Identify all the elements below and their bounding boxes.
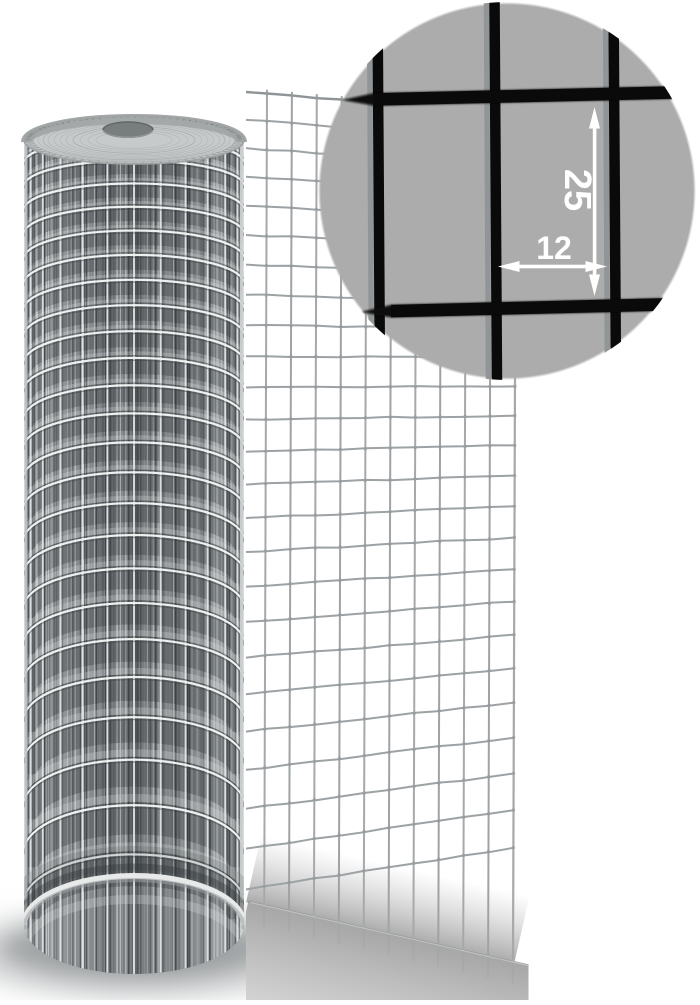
svg-text:25: 25 [556, 169, 598, 211]
svg-text:12: 12 [536, 230, 572, 266]
